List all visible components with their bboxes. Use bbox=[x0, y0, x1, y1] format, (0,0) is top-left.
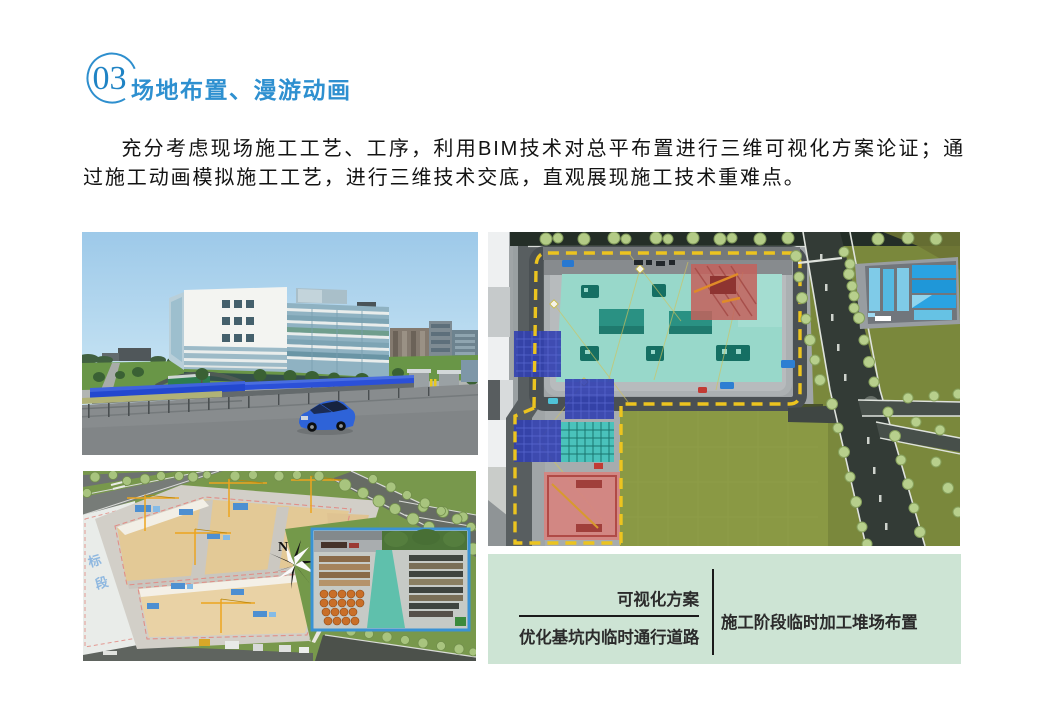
svg-text:N: N bbox=[278, 540, 288, 555]
svg-text:03: 03 bbox=[93, 60, 127, 97]
